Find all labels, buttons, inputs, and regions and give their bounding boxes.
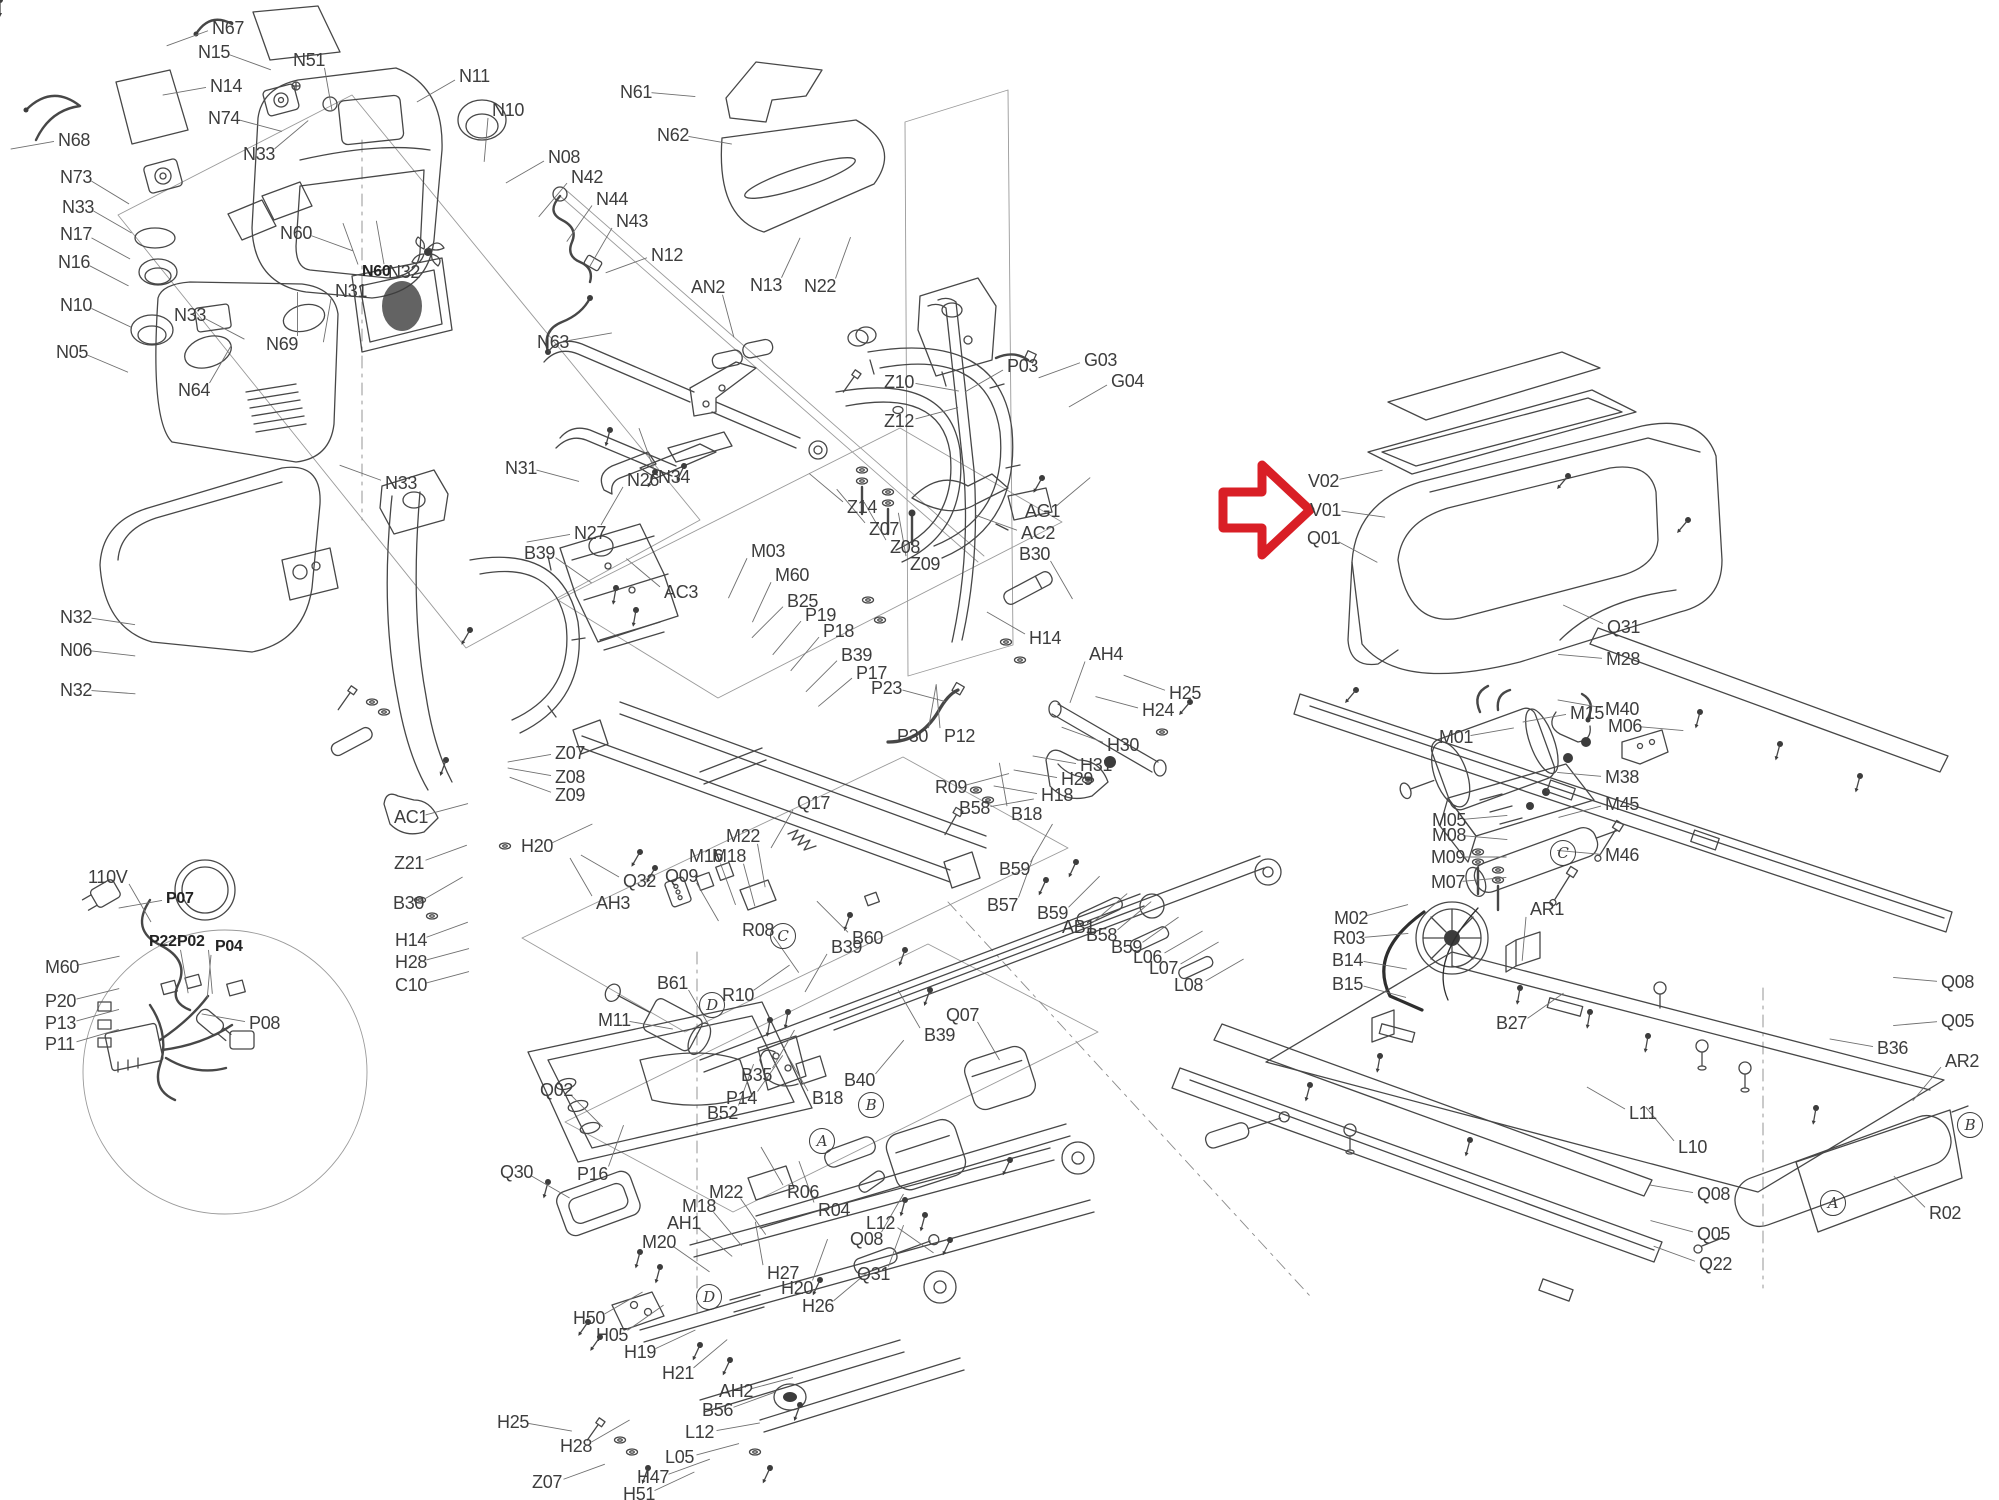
part-label-N60: N60 (280, 224, 312, 242)
part-label-Z07: Z07 (869, 520, 899, 538)
part-label-P11: P11 (45, 1035, 75, 1053)
part-label-N05: N05 (56, 343, 88, 361)
part-label-N14: N14 (210, 77, 242, 95)
part-label-Q22: Q22 (1699, 1255, 1732, 1273)
detail-marker-B: B (1957, 1112, 1983, 1138)
part-label-N69: N69 (266, 335, 298, 353)
part-label-M08: M08 (1432, 826, 1466, 844)
part-label-H18: H18 (1041, 786, 1073, 804)
part-label-AN2: AN2 (691, 278, 725, 296)
part-label-N73: N73 (60, 168, 92, 186)
part-label-B18: B18 (812, 1089, 843, 1107)
part-label-Z07: Z07 (555, 744, 585, 762)
part-label-M09: M09 (1431, 848, 1465, 866)
part-label-P13: P13 (45, 1014, 76, 1032)
part-label-N06: N06 (60, 641, 92, 659)
part-label-L11: L11 (1629, 1104, 1657, 1122)
part-label-M20: M20 (642, 1233, 676, 1251)
part-label-Z10: Z10 (884, 373, 914, 391)
part-label-N13: N13 (750, 276, 782, 294)
part-label-N33: N33 (174, 306, 206, 324)
part-label-L12: L12 (685, 1423, 714, 1441)
part-label-N34: N34 (658, 468, 690, 486)
part-label-P02: P02 (177, 934, 205, 950)
part-label-Q07: Q07 (946, 1006, 979, 1024)
part-label-AR1: AR1 (1530, 900, 1564, 918)
part-label-P23: P23 (871, 679, 902, 697)
part-label-V01: V01 (1310, 501, 1341, 519)
part-label-AG1: AG1 (1025, 502, 1060, 520)
part-label-N68: N68 (58, 131, 90, 149)
part-label-L10: L10 (1678, 1138, 1707, 1156)
part-label-AC3: AC3 (664, 583, 698, 601)
detail-marker-A: A (1820, 1190, 1846, 1216)
detail-marker-C: C (770, 923, 796, 949)
part-label-R04: R04 (818, 1201, 850, 1219)
part-label-M11: M11 (598, 1011, 631, 1029)
part-label-Q08: Q08 (850, 1230, 883, 1248)
part-label-Z12: Z12 (884, 412, 914, 430)
part-label-M07: M07 (1431, 873, 1465, 891)
part-label-M45: M45 (1605, 795, 1639, 813)
part-label-Q09: Q09 (665, 867, 698, 885)
part-label-Q31: Q31 (857, 1265, 890, 1283)
part-label-M18: M18 (712, 847, 746, 865)
part-label-B59: B59 (999, 860, 1030, 878)
part-label-P03: P03 (1007, 357, 1038, 375)
part-label-B39: B39 (924, 1026, 955, 1044)
part-label-N42: N42 (571, 168, 603, 186)
part-label-N15: N15 (198, 43, 230, 61)
part-label-N31: N31 (335, 282, 367, 300)
part-label-N62: N62 (657, 126, 689, 144)
part-label-N22: N22 (804, 277, 836, 295)
part-label-AC2: AC2 (1021, 524, 1055, 542)
part-label-B56: B56 (702, 1401, 733, 1419)
detail-marker-D: D (696, 1284, 722, 1310)
part-label-N31: N31 (505, 459, 537, 477)
part-label-Q08: Q08 (1697, 1185, 1730, 1203)
part-label-R06: R06 (787, 1183, 819, 1201)
part-label-B52: B52 (707, 1104, 738, 1122)
part-label-N33: N33 (62, 198, 94, 216)
part-label-Z14: Z14 (847, 498, 877, 516)
part-label-P12: P12 (944, 727, 975, 745)
part-label-110V: 110V (88, 868, 128, 886)
part-label-Q31: Q31 (1607, 618, 1640, 636)
part-label-B39: B39 (831, 938, 862, 956)
part-label-B57: B57 (987, 896, 1018, 914)
part-label-P22: P22 (149, 934, 177, 950)
part-label-N27: N27 (574, 524, 606, 542)
part-label-AH1: AH1 (667, 1214, 701, 1232)
part-label-M22: M22 (726, 827, 760, 845)
part-labels-layer: N67N15N51N14N74N33N68N73N33N17N16N10N05N… (0, 0, 1999, 1500)
part-label-B40: B40 (844, 1071, 875, 1089)
part-label-Q05: Q05 (1941, 1012, 1974, 1030)
part-label-N10: N10 (60, 296, 92, 314)
part-label-B39: B39 (524, 544, 555, 562)
part-label-AR2: AR2 (1945, 1052, 1979, 1070)
part-label-P08: P08 (249, 1014, 280, 1032)
part-label-M15: M15 (1570, 704, 1604, 722)
part-label-B30: B30 (393, 894, 424, 912)
part-label-B18: B18 (1011, 805, 1042, 823)
part-label-N16: N16 (58, 253, 90, 271)
part-label-M46: M46 (1605, 846, 1639, 864)
part-label-N32: N32 (60, 608, 92, 626)
part-label-N61: N61 (620, 83, 652, 101)
part-label-N12: N12 (651, 246, 683, 264)
part-label-AH4: AH4 (1089, 645, 1123, 663)
part-label-Q30: Q30 (500, 1163, 533, 1181)
detail-marker-C: C (1550, 840, 1576, 866)
part-label-M01: M01 (1439, 728, 1473, 746)
part-label-M06: M06 (1608, 717, 1642, 735)
part-label-P20: P20 (45, 992, 76, 1010)
part-label-M28: M28 (1606, 650, 1640, 668)
part-label-M02: M02 (1334, 909, 1368, 927)
part-label-N44: N44 (596, 190, 628, 208)
part-label-Q01: Q01 (1307, 529, 1340, 547)
part-label-B36: B36 (1877, 1039, 1908, 1057)
part-label-N67: N67 (212, 19, 244, 37)
part-label-Z09: Z09 (910, 555, 940, 573)
part-label-B14: B14 (1332, 951, 1363, 969)
part-label-H25: H25 (497, 1413, 529, 1431)
part-label-Z08: Z08 (555, 768, 585, 786)
part-label-M60: M60 (45, 958, 79, 976)
part-label-M38: M38 (1605, 768, 1639, 786)
part-label-N33: N33 (243, 145, 275, 163)
part-label-N11: N11 (459, 67, 490, 85)
detail-marker-B: B (858, 1092, 884, 1118)
part-label-N26: N26 (627, 471, 659, 489)
part-label-Q05: Q05 (1697, 1225, 1730, 1243)
part-label-B58: B58 (959, 799, 990, 817)
part-label-H28: H28 (560, 1437, 592, 1455)
part-label-P18: P18 (823, 622, 854, 640)
part-label-N74: N74 (208, 109, 240, 127)
detail-marker-D: D (699, 992, 725, 1018)
part-label-N08: N08 (548, 148, 580, 166)
part-label-Z07: Z07 (532, 1473, 562, 1491)
part-label-H20: H20 (521, 837, 553, 855)
part-label-B61: B61 (657, 974, 688, 992)
part-label-AC1: AC1 (394, 808, 428, 826)
part-label-Q08: Q08 (1941, 973, 1974, 991)
diagram-canvas: N67N15N51N14N74N33N68N73N33N17N16N10N05N… (0, 0, 1999, 1500)
part-label-B15: B15 (1332, 975, 1363, 993)
part-label-H14: H14 (1029, 629, 1061, 647)
part-label-H20: H20 (781, 1279, 813, 1297)
part-label-C10: C10 (395, 976, 427, 994)
part-label-P07: P07 (166, 891, 194, 907)
detail-marker-A: A (809, 1128, 835, 1154)
part-label-R02: R02 (1929, 1204, 1961, 1222)
part-label-N10: N10 (492, 101, 524, 119)
part-label-B27: B27 (1496, 1014, 1527, 1032)
part-label-L05: L05 (665, 1448, 694, 1466)
part-label-Q32: Q32 (623, 872, 656, 890)
part-label-Z09: Z09 (555, 786, 585, 804)
part-label-N60: N60 (362, 264, 390, 280)
part-label-H26: H26 (802, 1297, 834, 1315)
part-label-Z21: Z21 (394, 854, 424, 872)
part-label-N32: N32 (60, 681, 92, 699)
part-label-L08: L08 (1174, 976, 1203, 994)
part-label-H51: H51 (623, 1485, 655, 1500)
part-label-Q17: Q17 (797, 794, 830, 812)
part-label-B35: B35 (741, 1066, 772, 1084)
part-label-H14: H14 (395, 931, 427, 949)
part-label-N64: N64 (178, 381, 210, 399)
part-label-P16: P16 (577, 1165, 608, 1183)
part-label-N43: N43 (616, 212, 648, 230)
part-label-AH2: AH2 (719, 1382, 753, 1400)
part-label-B30: B30 (1019, 545, 1050, 563)
part-label-M60: M60 (775, 566, 809, 584)
part-label-AH3: AH3 (596, 894, 630, 912)
part-label-G03: G03 (1084, 351, 1117, 369)
part-label-H28: H28 (395, 953, 427, 971)
part-label-H21: H21 (662, 1364, 694, 1382)
part-label-H24: H24 (1142, 701, 1174, 719)
part-label-P30: P30 (897, 727, 928, 745)
part-label-N51: N51 (293, 51, 325, 69)
part-label-H30: H30 (1107, 736, 1139, 754)
part-label-N33: N33 (385, 474, 417, 492)
part-label-V02: V02 (1308, 472, 1339, 490)
part-label-H19: H19 (624, 1343, 656, 1361)
part-label-N63: N63 (537, 333, 569, 351)
part-label-R03: R03 (1333, 929, 1365, 947)
part-label-R09: R09 (935, 778, 967, 796)
part-label-B39: B39 (841, 646, 872, 664)
part-label-G04: G04 (1111, 372, 1144, 390)
part-label-Q02: Q02 (540, 1081, 573, 1099)
part-label-R10: R10 (722, 986, 754, 1004)
part-label-N32: N32 (388, 263, 420, 281)
part-label-M03: M03 (751, 542, 785, 560)
part-label-N17: N17 (60, 225, 92, 243)
part-label-P04: P04 (215, 939, 243, 955)
